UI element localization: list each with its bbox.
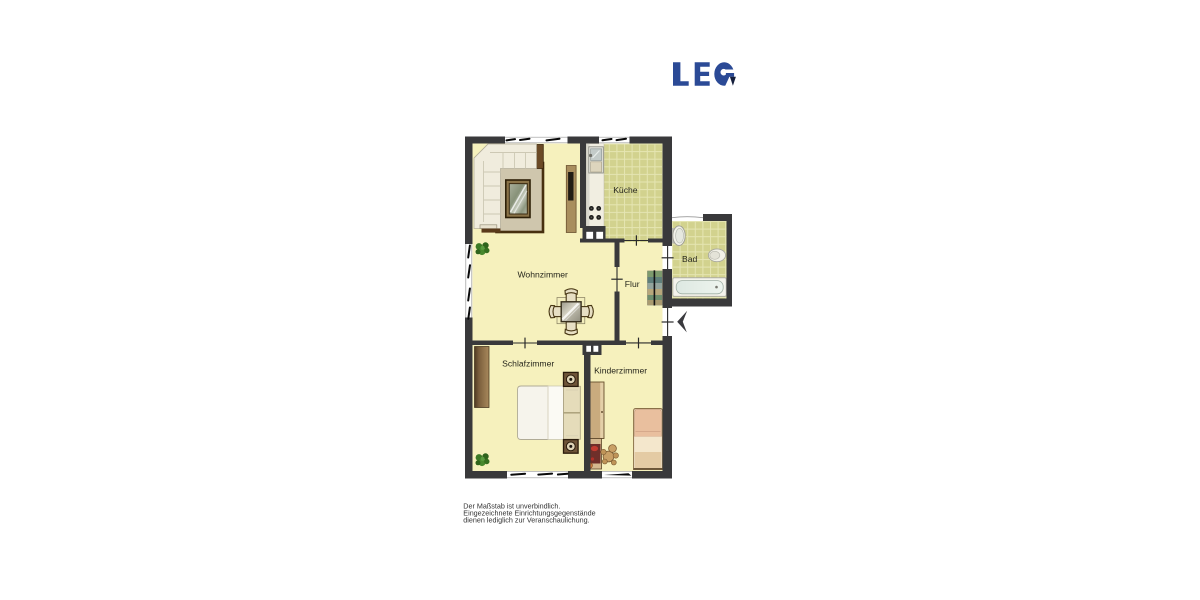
svg-text:dienen lediglich zur Veranscha: dienen lediglich zur Veranschaulichung.	[463, 515, 589, 524]
svg-text:Küche: Küche	[613, 185, 638, 195]
svg-text:Schlafzimmer: Schlafzimmer	[502, 358, 554, 368]
svg-text:Flur: Flur	[625, 279, 640, 289]
svg-text:Kinderzimmer: Kinderzimmer	[594, 366, 647, 376]
svg-text:Bad: Bad	[682, 254, 698, 264]
svg-text:Wohnzimmer: Wohnzimmer	[517, 270, 568, 280]
